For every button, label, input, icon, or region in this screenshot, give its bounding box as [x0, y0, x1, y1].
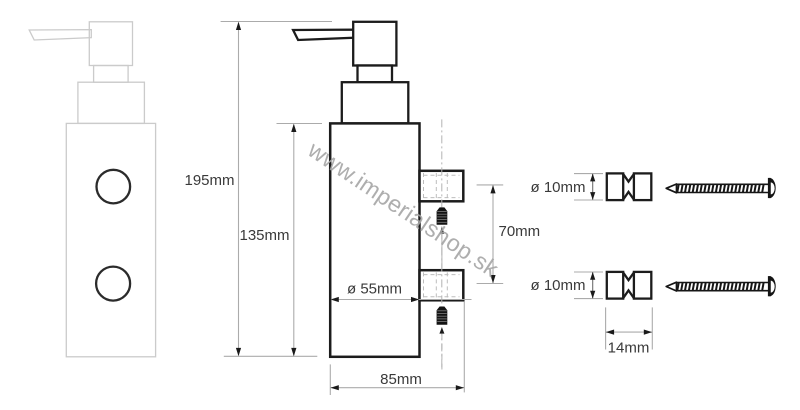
- svg-text:85mm: 85mm: [380, 371, 422, 388]
- svg-text:135mm: 135mm: [239, 227, 289, 244]
- svg-text:ø 10mm: ø 10mm: [531, 179, 586, 196]
- svg-text:195mm: 195mm: [184, 172, 234, 189]
- svg-text:70mm: 70mm: [499, 223, 541, 240]
- svg-text:ø 55mm: ø 55mm: [347, 281, 402, 298]
- svg-text:14mm: 14mm: [608, 340, 650, 357]
- svg-text:ø 10mm: ø 10mm: [531, 277, 586, 294]
